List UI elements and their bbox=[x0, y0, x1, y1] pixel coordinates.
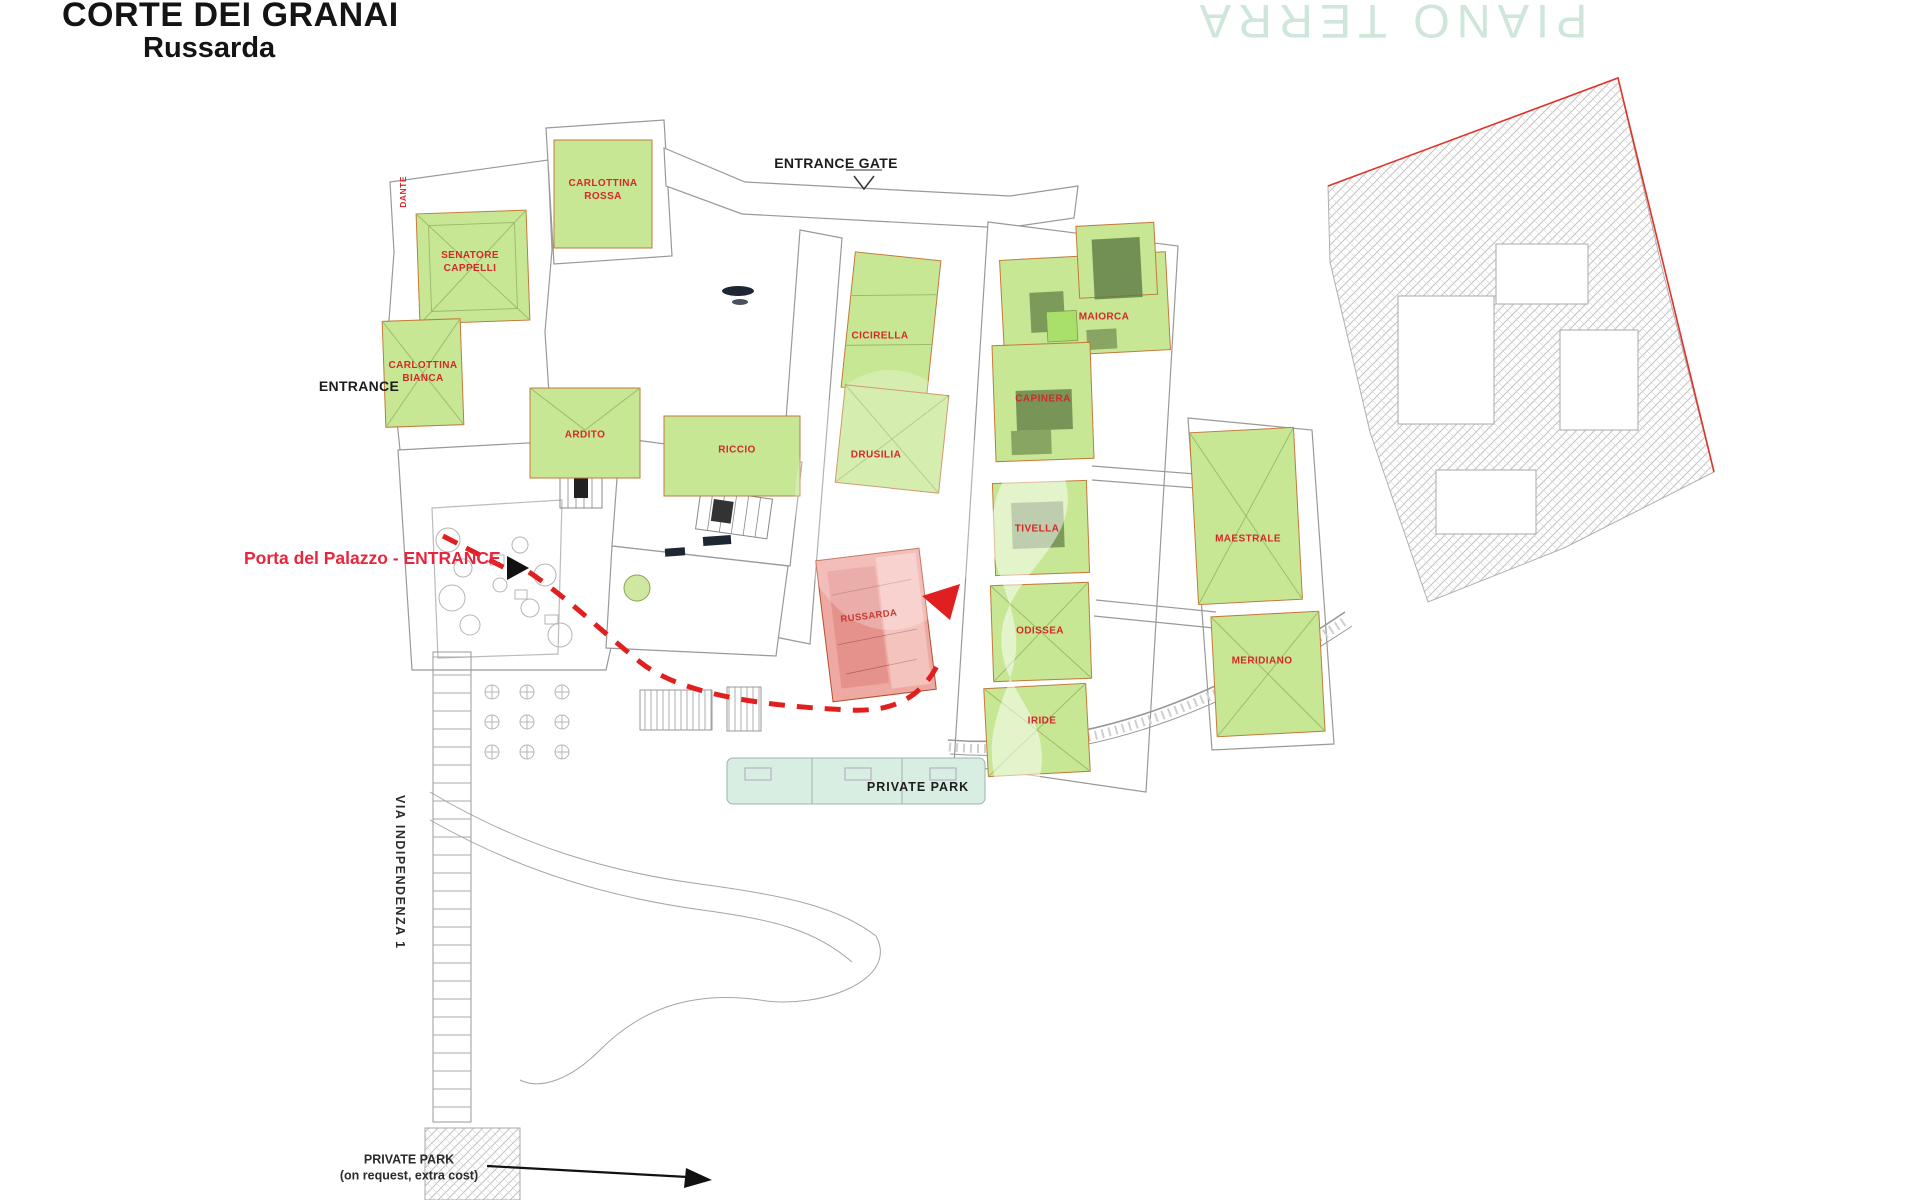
palace-door-label: Porta del Palazzo - ENTRANCE bbox=[244, 548, 501, 569]
apartment-label-cicirella: CICIRELLA bbox=[825, 330, 935, 343]
tree-circle bbox=[624, 575, 650, 601]
apartment-label-carlottina-rossa: CARLOTTINA ROSSA bbox=[559, 177, 647, 203]
apartment-label-maestrale: MAESTRALE bbox=[1193, 533, 1303, 546]
entrance-gate-label: ENTRANCE GATE bbox=[774, 155, 897, 171]
apartment-label-maiorca: MAIORCA bbox=[1049, 311, 1159, 324]
street-small-label: DANTE bbox=[398, 176, 408, 208]
apartment-label-drusilia: DRUSILIA bbox=[821, 449, 931, 462]
site-plan-drawing bbox=[0, 0, 1920, 1200]
apartment-label-capinera: CAPINERA bbox=[988, 393, 1098, 406]
page-subtitle: Russarda bbox=[143, 32, 275, 65]
site-plan-page: CORTE DEI GRANAI Russarda PIANO TERRA EN… bbox=[0, 0, 1920, 1200]
apartment-label-iride: IRIDE bbox=[998, 715, 1086, 728]
page-title: CORTE DEI GRANAI bbox=[62, 0, 399, 35]
private-park-note-line2: (on request, extra cost) bbox=[340, 1168, 478, 1184]
private-park-label: PRIVATE PARK bbox=[867, 780, 969, 794]
apartment-label-senatore-cappelli: SENATORE CAPPELLI bbox=[430, 249, 510, 275]
private-park-note-line1: PRIVATE PARK bbox=[340, 1152, 478, 1168]
apartment-label-odissea: ODISSEA bbox=[996, 625, 1084, 638]
floor-watermark: PIANO TERRA bbox=[1188, 0, 1592, 49]
parterre-grid bbox=[485, 685, 569, 759]
entrance-gate-marker-icon bbox=[846, 170, 882, 189]
ruin-hatched-area bbox=[1328, 78, 1714, 602]
apartment-label-meridiano: MERIDIANO bbox=[1207, 655, 1317, 668]
private-park-arrow-icon bbox=[487, 1166, 712, 1188]
apartment-label-riccio: RICCIO bbox=[687, 444, 787, 457]
apartment-label-carlottina-bianca: CARLOTTINA BIANCA bbox=[379, 359, 467, 385]
private-park-note: PRIVATE PARK (on request, extra cost) bbox=[340, 1152, 478, 1183]
street-label: VIA INDIPENDENZA 1 bbox=[393, 795, 407, 950]
apartment-label-tivella: TIVELLA bbox=[982, 523, 1092, 536]
apartment-label-ardito: ARDITO bbox=[535, 429, 635, 442]
